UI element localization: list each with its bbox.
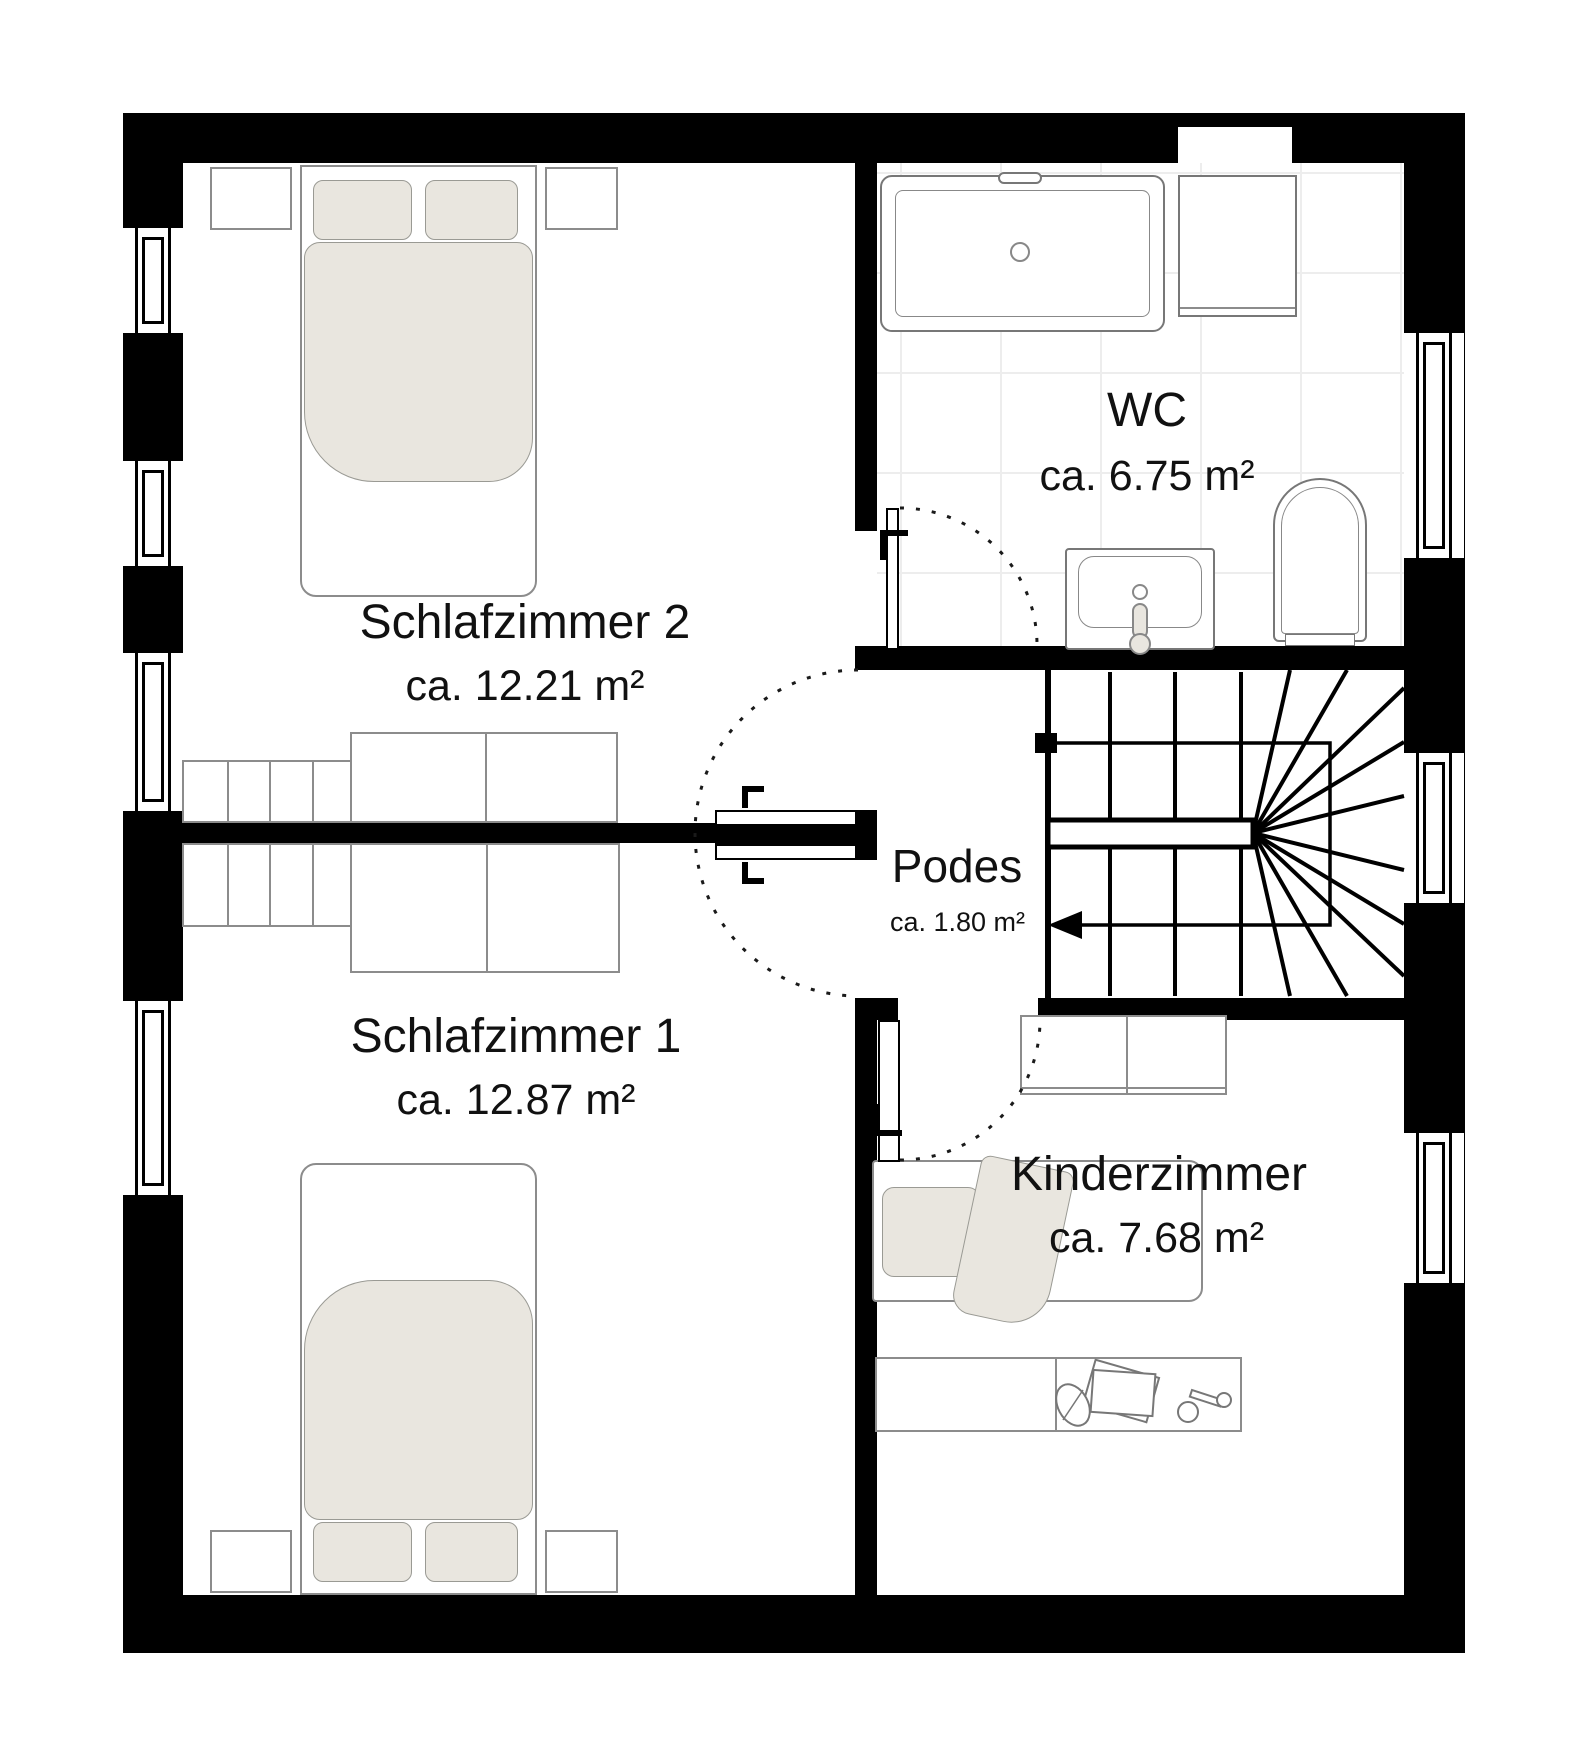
stair-winder-line — [1253, 833, 1290, 996]
toilet-base — [1285, 634, 1355, 646]
wardrobe-divider — [486, 845, 488, 971]
window-sash — [1423, 762, 1445, 894]
bathtub-faucet-icon — [998, 172, 1042, 184]
outer-wall-bottom — [123, 1595, 1465, 1653]
stair-winder-line — [1253, 688, 1404, 833]
stairs-icon — [1110, 670, 1404, 996]
room-label-schlafzimmer2: Schlafzimmer 2 — [325, 598, 725, 648]
window-sash — [142, 237, 164, 324]
room-area-schlafzimmer1: ca. 12.87 m² — [316, 1078, 716, 1123]
toilet-bowl — [1281, 487, 1359, 634]
window-sash — [1423, 342, 1445, 549]
nightstand-icon — [210, 167, 292, 230]
wall-kinderzimmer-west — [855, 1020, 877, 1595]
window-right-kinderzimmer — [1404, 1130, 1464, 1286]
top-wall-niche — [1178, 127, 1292, 163]
room-label-wc: WC — [1047, 386, 1247, 436]
handrail-icon — [1048, 820, 1253, 847]
room-label-schlafzimmer1: Schlafzimmer 1 — [316, 1012, 716, 1062]
door-leaf-icon — [715, 810, 857, 826]
floor-plan: Schlafzimmer 2 ca. 12.21 m² WC ca. 6.75 … — [0, 0, 1590, 1763]
window-frame-line — [1449, 1133, 1452, 1283]
washbasin-bowl — [1078, 556, 1202, 628]
wall-stairs-west-line — [1045, 670, 1051, 998]
window-frame-line — [1416, 333, 1419, 558]
stair-winder-line — [1253, 833, 1404, 870]
dresser-divider — [227, 762, 229, 821]
room-area-wc: ca. 6.75 m² — [1022, 454, 1272, 499]
window-left-3 — [123, 650, 183, 814]
dresser-icon — [182, 760, 352, 823]
room-area-podest: ca. 1.80 m² — [860, 908, 1055, 936]
door-leaf-icon — [886, 508, 899, 650]
wardrobe-icon — [1020, 1015, 1227, 1095]
stair-winder-line — [1253, 833, 1404, 976]
wall-podes-south-stub — [855, 998, 898, 1020]
stair-winder-line — [1253, 796, 1404, 833]
room-label-kinderzimmer: Kinderzimmer — [959, 1150, 1359, 1200]
window-frame-line — [168, 228, 171, 333]
window-sash — [1423, 1142, 1445, 1274]
duvet-icon — [304, 242, 533, 482]
window-frame-line — [1416, 1133, 1419, 1283]
wardrobe-icon — [350, 843, 620, 973]
outer-wall-left — [123, 113, 183, 1653]
window-frame-line — [168, 653, 171, 811]
window-frame-line — [135, 653, 138, 811]
window-frame-line — [135, 461, 138, 566]
window-right-stairs — [1404, 750, 1464, 906]
nightstand-icon — [545, 1530, 618, 1593]
window-frame-line — [135, 1001, 138, 1195]
kinderzimmer-door-arc — [900, 1020, 1040, 1160]
duvet-icon — [304, 1280, 533, 1520]
room-area-schlafzimmer2: ca. 12.21 m² — [325, 664, 725, 709]
window-left-1 — [123, 225, 183, 336]
dresser-divider — [312, 845, 314, 925]
window-sash — [142, 470, 164, 557]
door-leaf-icon — [715, 844, 857, 860]
dresser-divider — [269, 762, 271, 821]
room-label-podest: Podes — [857, 842, 1057, 890]
pillow-icon — [425, 1522, 518, 1582]
stair-winder-line — [1253, 670, 1290, 833]
room-area-kinderzimmer: ca. 7.68 m² — [959, 1216, 1354, 1261]
stair-winder-line — [1253, 670, 1347, 833]
stair-winder-line — [1253, 742, 1404, 833]
wardrobe-divider — [1126, 1017, 1128, 1093]
wardrobe-divider — [485, 734, 487, 821]
window-right-wc — [1404, 330, 1464, 561]
window-sash — [142, 662, 164, 802]
walk-direction-arrow-icon — [1035, 733, 1330, 939]
stair-winder-line — [1253, 833, 1404, 924]
window-frame-line — [168, 461, 171, 566]
dresser-divider — [227, 845, 229, 925]
walkline-path — [1057, 743, 1330, 925]
window-frame-line — [135, 228, 138, 333]
wardrobe-front-line — [1022, 1087, 1225, 1089]
window-frame-line — [1416, 753, 1419, 903]
window-sash — [142, 1010, 164, 1186]
stair-winder-line — [1253, 833, 1347, 996]
vanity-cabinet-icon — [1178, 175, 1297, 317]
dresser-icon — [182, 843, 352, 927]
desk-divider — [1055, 1359, 1057, 1430]
vanity-front-line — [1180, 307, 1295, 309]
window-frame-line — [168, 1001, 171, 1195]
wall-divider-door-band — [715, 826, 877, 844]
window-frame-line — [1449, 333, 1452, 558]
desk-icon — [875, 1357, 1242, 1432]
pillow-icon — [425, 180, 518, 240]
wardrobe-icon — [350, 732, 618, 823]
nightstand-icon — [545, 167, 618, 230]
dresser-divider — [269, 845, 271, 925]
door-stop — [742, 862, 764, 884]
pillow-icon — [313, 180, 412, 240]
window-left-2 — [123, 458, 183, 569]
wall-wc-west — [855, 163, 877, 531]
wall-bedroom-divider — [183, 823, 715, 843]
pillow-icon — [313, 1522, 412, 1582]
window-frame-line — [1449, 753, 1452, 903]
nightstand-icon — [210, 1530, 292, 1593]
bathtub-inner — [895, 190, 1150, 317]
window-left-4 — [123, 998, 183, 1198]
door-leaf-icon — [878, 1020, 900, 1162]
dresser-divider — [312, 762, 314, 821]
door-stop — [742, 786, 764, 808]
